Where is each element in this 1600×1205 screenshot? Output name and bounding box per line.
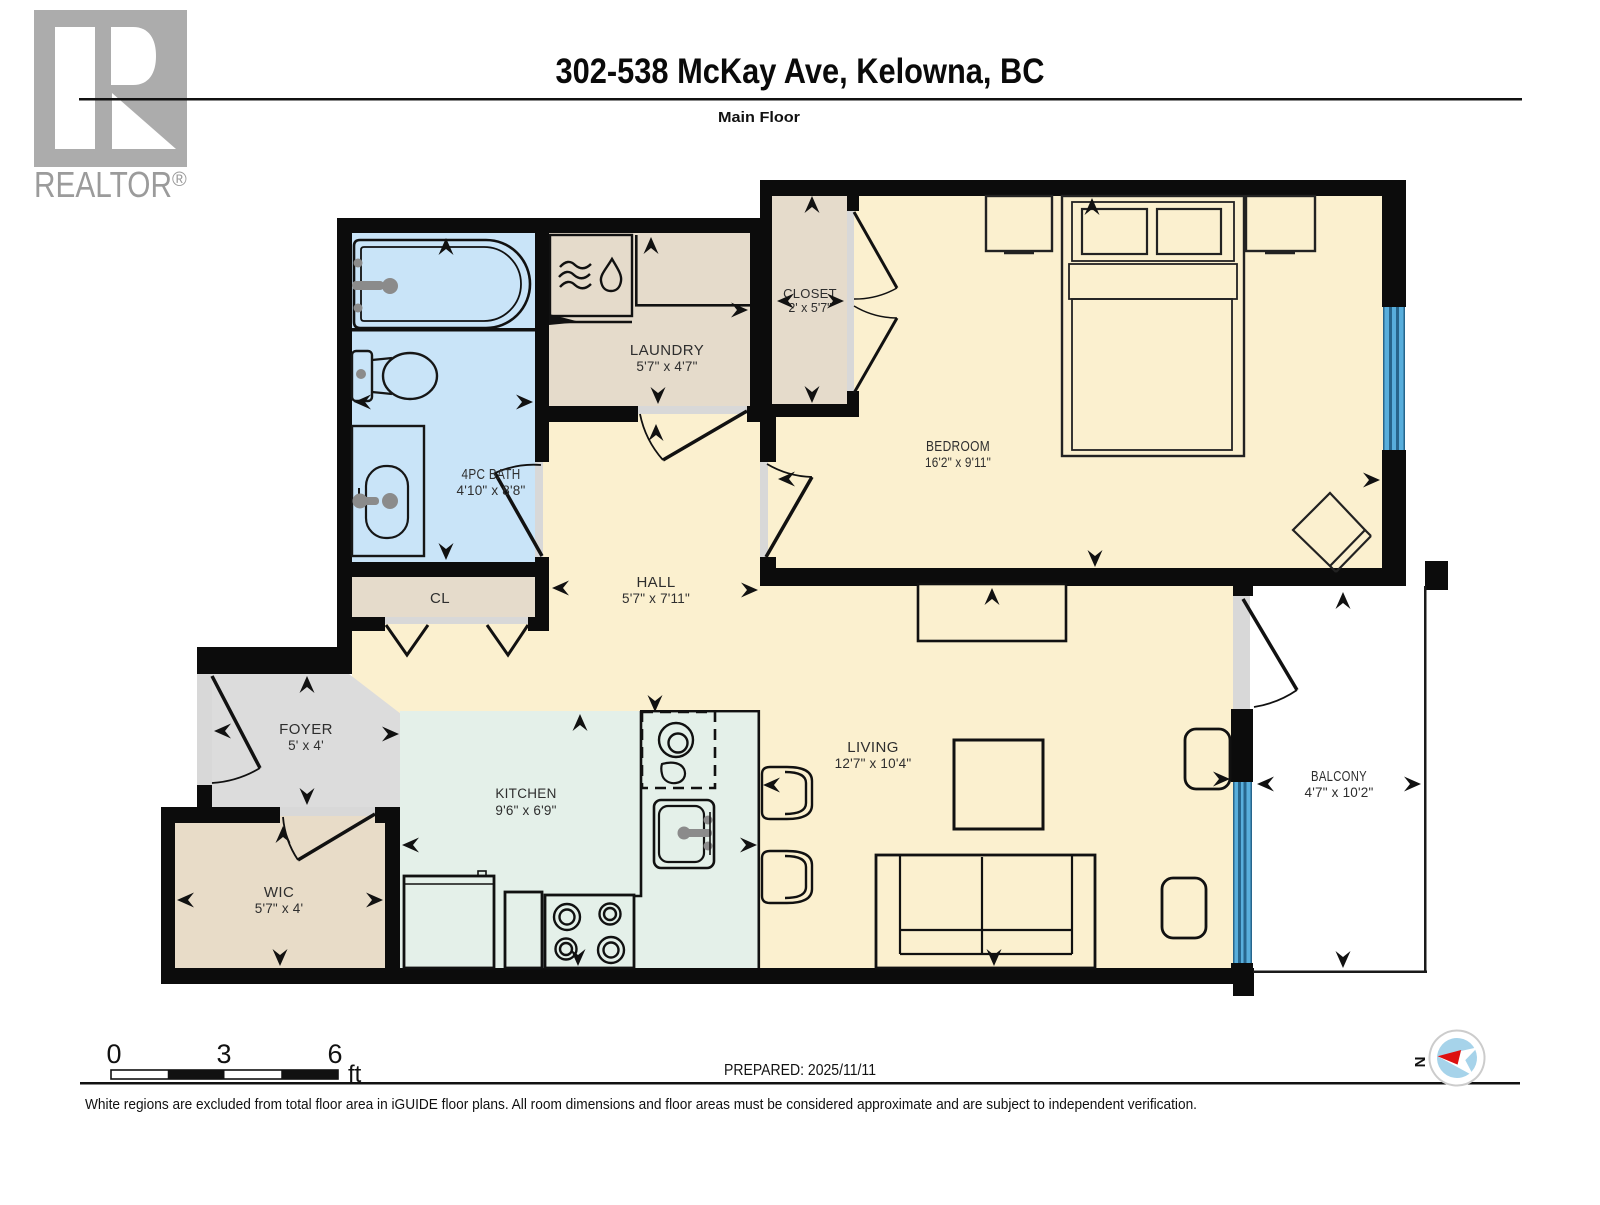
svg-text:CLOSET: CLOSET: [783, 286, 837, 301]
svg-text:5' x 4': 5' x 4': [288, 738, 324, 753]
svg-text:N: N: [1412, 1057, 1429, 1068]
svg-text:BALCONY: BALCONY: [1311, 768, 1367, 785]
svg-text:FOYER: FOYER: [279, 721, 333, 738]
svg-text:REALTOR: REALTOR: [34, 164, 172, 205]
svg-text:White regions are excluded fro: White regions are excluded from total fl…: [85, 1097, 1197, 1113]
svg-text:5'7" x 4'7": 5'7" x 4'7": [636, 359, 697, 374]
svg-text:4PC BATH: 4PC BATH: [462, 466, 521, 483]
svg-text:2' x 5'7": 2' x 5'7": [788, 301, 831, 315]
svg-text:CL: CL: [430, 590, 450, 607]
svg-text:LIVING: LIVING: [847, 739, 899, 756]
svg-text:4'10" x 8'8": 4'10" x 8'8": [457, 483, 526, 498]
svg-text:4'7" x 10'2": 4'7" x 10'2": [1305, 785, 1374, 800]
svg-text:LAUNDRY: LAUNDRY: [630, 342, 704, 359]
svg-text:HALL: HALL: [636, 574, 675, 591]
svg-text:WIC: WIC: [264, 884, 294, 901]
svg-text:16'2" x 9'11": 16'2" x 9'11": [925, 455, 991, 470]
svg-text:9'6" x 6'9": 9'6" x 6'9": [495, 803, 556, 818]
svg-text:®: ®: [172, 169, 187, 191]
svg-text:12'7" x 10'4": 12'7" x 10'4": [835, 756, 912, 771]
svg-text:KITCHEN: KITCHEN: [495, 786, 556, 801]
svg-text:5'7" x 4': 5'7" x 4': [255, 901, 304, 916]
svg-text:5'7" x 7'11": 5'7" x 7'11": [622, 591, 690, 606]
svg-text:6: 6: [327, 1039, 342, 1069]
svg-text:3: 3: [216, 1039, 231, 1069]
svg-text:302-538 McKay Ave, Kelowna, BC: 302-538 McKay Ave, Kelowna, BC: [556, 52, 1045, 91]
svg-text:0: 0: [106, 1039, 121, 1069]
svg-text:Main Floor: Main Floor: [718, 109, 800, 126]
svg-text:PREPARED: 2025/11/11: PREPARED: 2025/11/11: [724, 1062, 876, 1079]
svg-text:BEDROOM: BEDROOM: [926, 438, 990, 455]
